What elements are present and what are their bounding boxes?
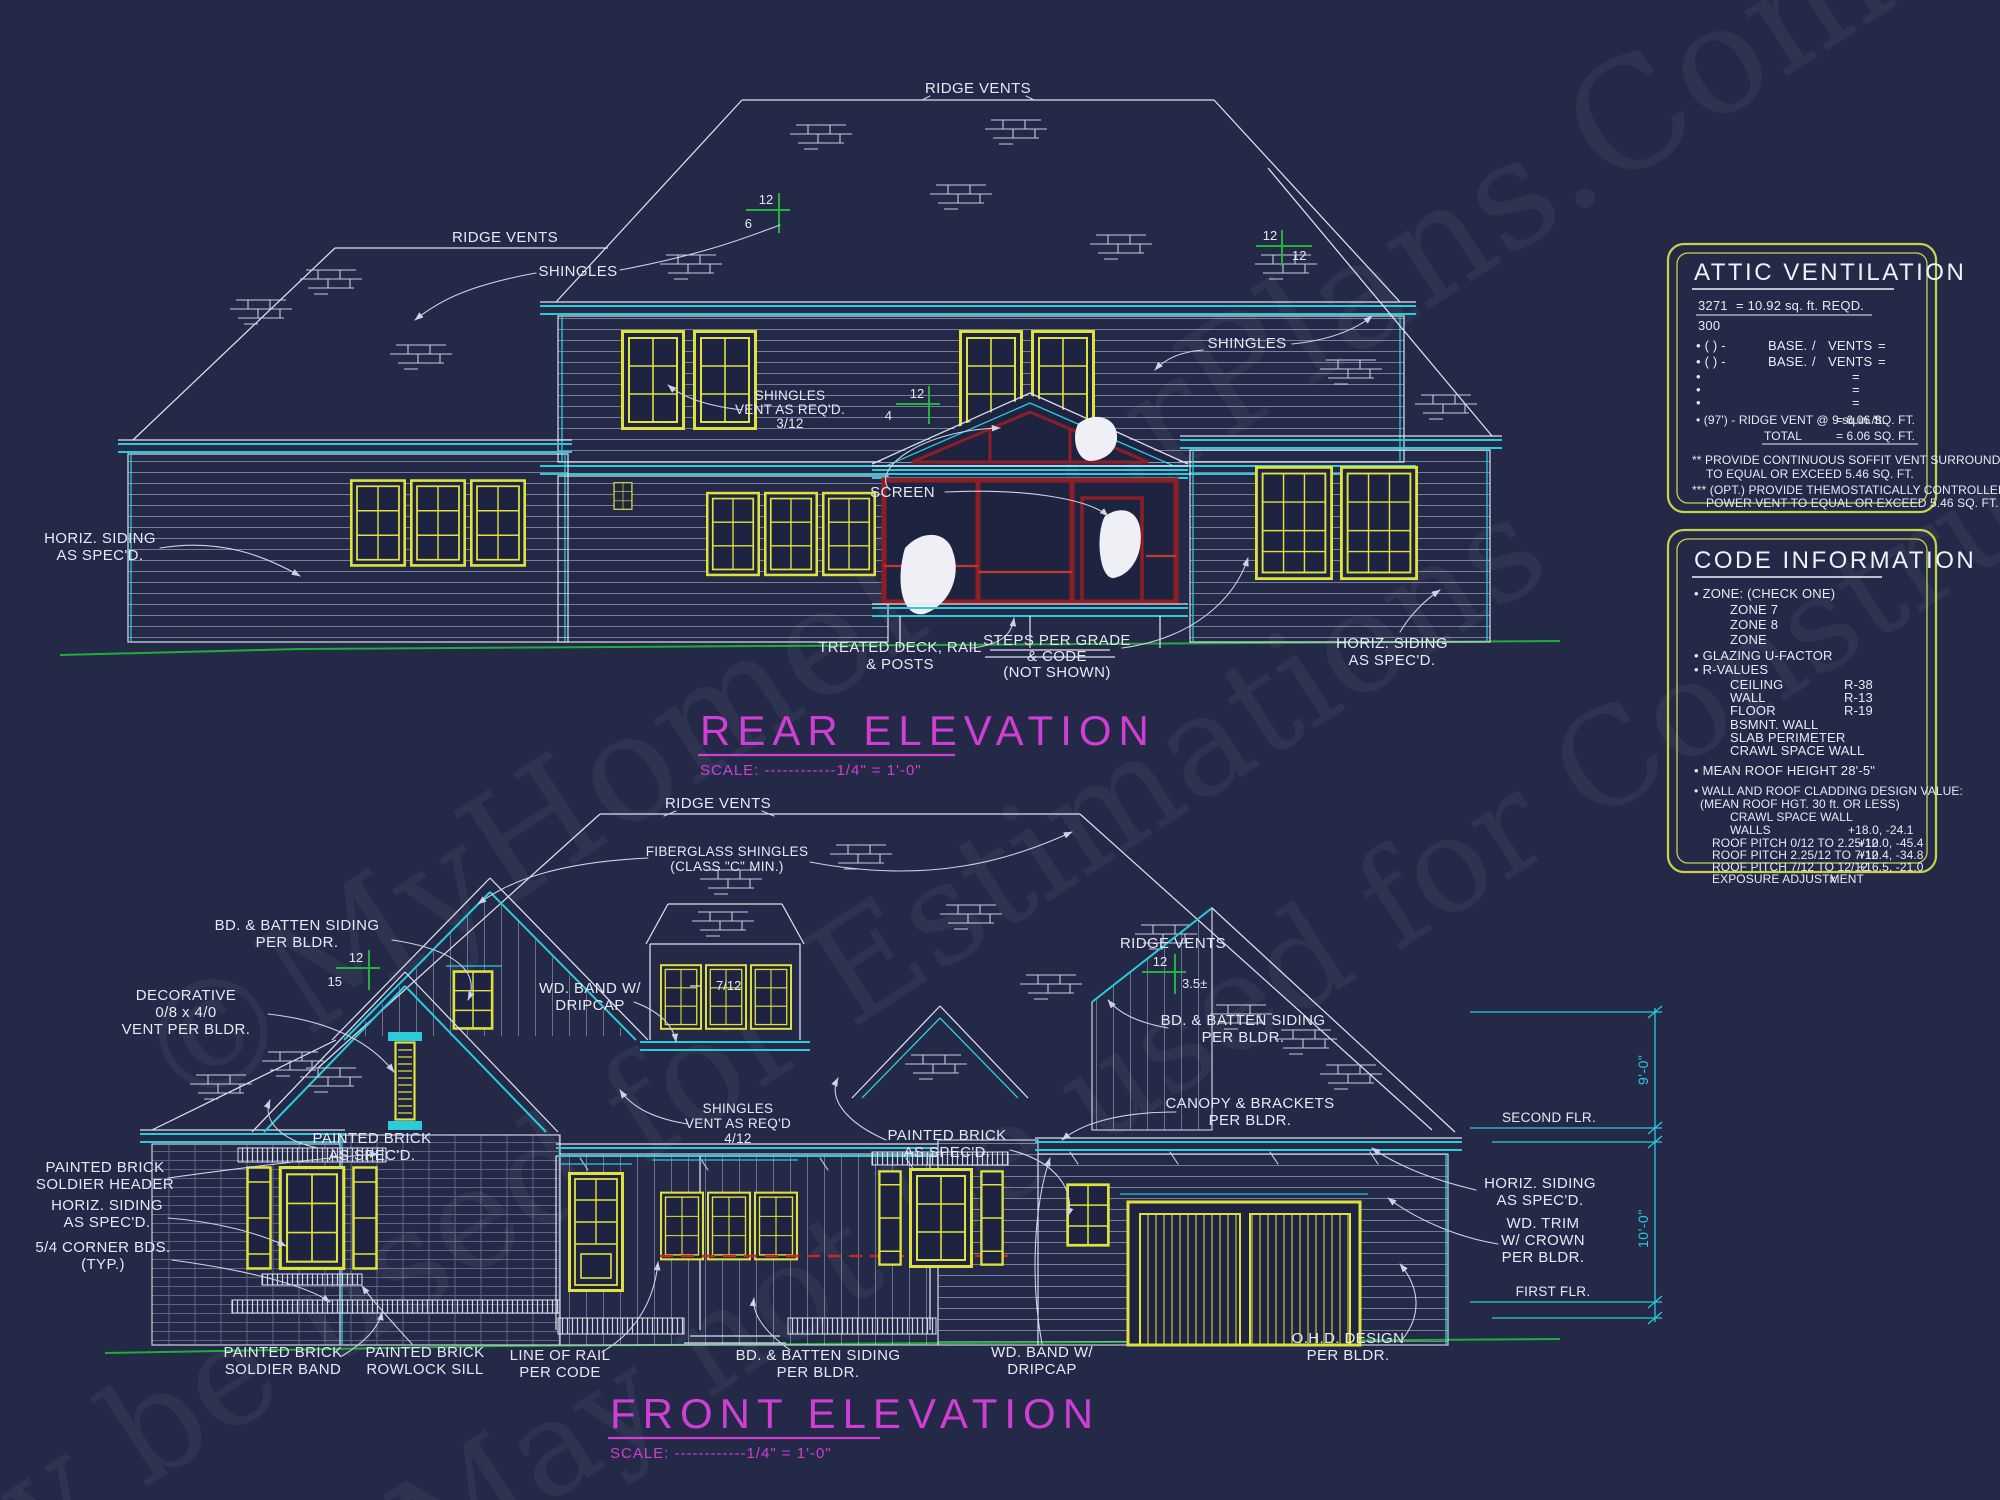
front-label-wd-band-left-2: DRIPCAP: [555, 997, 624, 1014]
front-label-bd-batten-right-2: PER BLDR.: [1202, 1029, 1285, 1046]
front-label-soldier-header-1: PAINTED BRICK: [45, 1159, 164, 1176]
front-label-ridge-vents-top: RIDGE VENTS: [665, 795, 771, 812]
front-center-window-c: [755, 1193, 797, 1260]
blueprint-canvas: ©MyHomeFloorPlans.Com May not be used fo…: [0, 0, 2000, 1500]
front-pitch-left-run: 15: [328, 974, 342, 989]
attic-dot3-e: =: [1852, 395, 1860, 410]
attic-ridge-value: = 6.06 SQ. FT.: [1836, 413, 1915, 427]
code-row-15: CRAWL SPACE WALL: [1730, 810, 1853, 824]
rear-label-treated-deck-2: & POSTS: [866, 656, 934, 673]
attic-req-numerator: 3271: [1698, 298, 1728, 313]
rear-label-shingles-vent-3: 3/12: [776, 416, 803, 431]
attic-base2-eq: =: [1878, 354, 1886, 369]
front-label-soldier-band-2: SOLDIER BAND: [225, 1361, 342, 1378]
front-dim-upper: 9'-0": [1635, 1055, 1651, 1085]
rear-pitch-porch-run: 4: [885, 408, 892, 423]
code-row-14: (MEAN ROOF HGT. 30 ft. OR LESS): [1700, 797, 1900, 811]
front-left-shutter-a: [248, 1168, 271, 1269]
rear-right-window-b: [1341, 467, 1416, 578]
rear-left-window-a: [351, 481, 404, 566]
code-row-13: • WALL AND ROOF CLADDING DESIGN VALUE:: [1694, 784, 1963, 798]
attic-req-denominator: 300: [1698, 318, 1720, 333]
front-label-rowlock-1: PAINTED BRICK: [365, 1344, 484, 1361]
code-row-20-value: x: [1830, 872, 1836, 886]
front-entry-door: [570, 1174, 623, 1291]
front-label-horiz-siding-right-2: AS SPEC'D.: [1497, 1192, 1584, 1209]
rear-label-steps-2: & CODE: [1027, 648, 1087, 665]
front-left-window: [280, 1168, 343, 1269]
front-label-fiberglass-2: (CLASS "C" MIN.): [670, 859, 783, 874]
front-gable-small-window: [454, 972, 492, 1029]
front-label-soldier-header-2: SOLDIER HEADER: [36, 1176, 174, 1193]
rear-label-horiz-siding-right-2: AS SPEC'D.: [1349, 652, 1436, 669]
rear-label-steps-3: (NOT SHOWN): [1003, 664, 1110, 681]
rear-center-window-a: [707, 493, 758, 575]
front-label-fiberglass-1: FIBERGLASS SHINGLES: [646, 844, 809, 859]
rear-pitch-right-run: 12: [1292, 248, 1306, 263]
front-label-painted-brick-left-2: AS SPEC'D.: [329, 1147, 416, 1164]
rear-upper-window-left-a: [623, 332, 684, 429]
rear-label-screen: SCREEN: [870, 484, 935, 501]
rear-pitch-left-rise: 12: [759, 192, 773, 207]
front-dimensions: SECOND FLR. FIRST FLR. 9'-0" 10'-0": [1470, 1006, 1662, 1324]
attic-dot3-b: •: [1696, 395, 1701, 410]
front-label-bd-batten-bottom-2: PER BLDR.: [777, 1364, 860, 1381]
front-label-canopy-2: PER BLDR.: [1209, 1112, 1292, 1129]
front-label-canopy-1: CANOPY & BRACKETS: [1165, 1095, 1334, 1112]
rear-pitch-right-rise: 12: [1263, 228, 1277, 243]
front-label-painted-brick-left-1: PAINTED BRICK: [312, 1130, 431, 1147]
front-pitch-right-rise: 12: [1153, 954, 1167, 969]
rear-pitch-porch-rise: 12: [910, 386, 924, 401]
front-label-wd-trim-crown-1: WD. TRIM: [1507, 1215, 1580, 1232]
rear-label-horiz-siding-left-2: AS SPEC'D.: [57, 547, 144, 564]
front-dormer-window-c: [751, 965, 791, 1029]
front-second-floor-label: SECOND FLR.: [1502, 1110, 1596, 1125]
front-label-ohd-2: PER BLDR.: [1307, 1347, 1390, 1364]
front-label-ohd-1: O.H.D. DESIGN: [1292, 1330, 1405, 1347]
rear-label-treated-deck-1: TREATED DECK, RAIL: [818, 639, 982, 656]
code-row-1: ZONE 7: [1730, 602, 1778, 617]
front-label-decorative-3: VENT PER BLDR.: [122, 1021, 251, 1038]
attic-base2-base: BASE.: [1768, 354, 1807, 369]
rear-label-horiz-siding-left-1: HORIZ. SIDING: [44, 530, 156, 547]
attic-base1-slash: /: [1812, 338, 1816, 353]
code-row-5: • R-VALUES: [1694, 662, 1768, 677]
attic-base-row-2: • ( ) - BASE. / VENTS =: [1696, 354, 1886, 369]
front-label-wd-band-bottom-1: WD. BAND W/: [991, 1344, 1093, 1361]
attic-note1-line2: TO EQUAL OR EXCEED 5.46 SQ. FT.: [1706, 467, 1914, 481]
front-title: FRONT ELEVATION: [610, 1390, 1100, 1437]
attic-base2-slash: /: [1812, 354, 1816, 369]
front-right-shutter-b: [981, 1171, 1002, 1264]
front-label-wd-trim-crown-3: PER BLDR.: [1502, 1249, 1585, 1266]
rear-pitch-left: 12 6: [745, 192, 790, 233]
rear-pitch-left-run: 6: [745, 216, 752, 231]
front-right-window: [911, 1170, 972, 1267]
rear-small-window: [614, 483, 632, 510]
code-row-0: • ZONE: (CHECK ONE): [1694, 586, 1835, 601]
code-row-3: ZONE: [1730, 632, 1767, 647]
attic-base1-prefix: • ( ) -: [1696, 338, 1726, 353]
code-panel-title: CODE INFORMATION: [1694, 547, 1976, 574]
front-label-horiz-siding-left-1: HORIZ. SIDING: [51, 1197, 163, 1214]
front-left-shutter-b: [354, 1168, 377, 1269]
front-pitch-right-run: 3.5±: [1182, 976, 1207, 991]
attic-base1-vents: VENTS: [1828, 338, 1872, 353]
code-row-12: • MEAN ROOF HEIGHT 28'-5": [1694, 763, 1875, 778]
front-pitch-left-rise: 12: [349, 950, 363, 965]
attic-total-label: TOTAL: [1764, 429, 1802, 443]
attic-note1-line1: ** PROVIDE CONTINUOUS SOFFIT VENT SURROU…: [1692, 453, 2000, 467]
rear-first-floor: [558, 476, 888, 642]
rear-label-shingles-vent-2: VENT AS REQ'D.: [735, 402, 845, 417]
front-label-wd-trim-crown-2: W/ CROWN: [1501, 1232, 1585, 1249]
rear-label-steps-1: STEPS PER GRADE: [983, 632, 1131, 649]
front-label-painted-brick-right-2: AS SPEC'D.: [904, 1144, 991, 1161]
code-row-16-value: +18.0, -24.1: [1848, 823, 1914, 837]
attic-note2-line2: POWER VENT TO EQUAL OR EXCEED 5.46 SQ. F…: [1706, 496, 1999, 510]
front-dormer-pitch: 7/12: [716, 978, 741, 993]
front-label-bd-batten-right-1: BD. & BATTEN SIDING: [1161, 1012, 1326, 1029]
front-label-corner-bds-1: 5/4 CORNER BDS.: [35, 1239, 170, 1256]
front-label-bd-batten-left-2: PER BLDR.: [256, 934, 339, 951]
front-dormer-window-b: [706, 965, 746, 1029]
front-label-wd-band-left-1: WD. BAND W/: [539, 980, 641, 997]
front-garage-window: [1068, 1185, 1109, 1246]
attic-base1-eq: =: [1878, 338, 1886, 353]
front-dormer-window-a: [661, 965, 701, 1029]
attic-base2-vents: VENTS: [1828, 354, 1872, 369]
attic-base2-prefix: • ( ) -: [1696, 354, 1726, 369]
attic-base1-base: BASE.: [1768, 338, 1807, 353]
front-right-shutter-a: [879, 1171, 900, 1264]
front-label-rowlock-2: ROWLOCK SILL: [366, 1361, 483, 1378]
attic-total-value: = 6.06 SQ. FT.: [1836, 429, 1915, 443]
rear-label-shingles-right: SHINGLES: [1207, 335, 1286, 352]
code-row-8-value: R-19: [1844, 703, 1873, 718]
rear-center-window-c: [823, 493, 874, 575]
front-label-bd-batten-bottom-1: BD. & BATTEN SIDING: [736, 1347, 901, 1364]
front-label-line-of-rail-1: LINE OF RAIL: [510, 1347, 611, 1364]
rear-left-wing: [118, 248, 608, 642]
rear-center-window-b: [765, 493, 816, 575]
rear-label-horiz-siding-right-1: HORIZ. SIDING: [1336, 635, 1448, 652]
front-dim-lower: 10'-0": [1635, 1209, 1651, 1248]
rear-label-shingles-left: SHINGLES: [538, 263, 617, 280]
front-center-window-a: [661, 1193, 703, 1260]
front-label-shingles-vent-1: SHINGLES: [703, 1101, 774, 1116]
front-decorative-vent: [396, 1043, 415, 1120]
code-row-19-value: +16.5, -21.0: [1858, 860, 1924, 874]
rear-label-shingles-vent-1: SHINGLES: [755, 388, 826, 403]
code-row-20: EXPOSURE ADJUSTMENT: [1712, 872, 1864, 886]
front-label-decorative-1: DECORATIVE: [136, 987, 236, 1004]
front-scale: SCALE: ------------1/4" = 1'-0": [610, 1445, 832, 1462]
rear-label-ridge-vents-left: RIDGE VENTS: [452, 229, 558, 246]
code-row-8: FLOOR: [1730, 703, 1776, 718]
front-label-shingles-vent-3: 4/12: [724, 1131, 751, 1146]
front-label-decorative-2: 0/8 x 4/0: [155, 1004, 216, 1021]
rear-left-window-b: [411, 481, 464, 566]
attic-req-rest: = 10.92 sq. ft. REQD.: [1736, 298, 1864, 313]
rear-left-window-c: [471, 481, 524, 566]
attic-note2-line1: *** (OPT.) PROVIDE THEMOSTATICALLY CONTR…: [1692, 483, 2000, 497]
code-row-11: CRAWL SPACE WALL: [1730, 743, 1864, 758]
attic-dot-rows: • = • = • =: [1696, 369, 1860, 410]
front-label-shingles-vent-2: VENT AS REQ'D: [685, 1116, 791, 1131]
front-label-bd-batten-left-1: BD. & BATTEN SIDING: [215, 917, 380, 934]
attic-panel-title: ATTIC VENTILATION: [1694, 259, 1966, 286]
front-label-wd-band-bottom-2: DRIPCAP: [1007, 1361, 1076, 1378]
front-center-window-b: [708, 1193, 750, 1260]
front-label-corner-bds-2: (TYP.): [81, 1256, 125, 1273]
rear-title: REAR ELEVATION: [700, 707, 1156, 754]
front-label-line-of-rail-2: PER CODE: [519, 1364, 601, 1381]
front-title-block: FRONT ELEVATION SCALE: ------------1/4" …: [608, 1390, 1100, 1462]
code-row-4: • GLAZING U-FACTOR: [1694, 648, 1833, 663]
front-label-ridge-vents-right: RIDGE VENTS: [1120, 935, 1226, 952]
attic-base-row-1: • ( ) - BASE. / VENTS =: [1696, 338, 1886, 353]
front-first-floor-label: FIRST FLR.: [1516, 1284, 1591, 1299]
front-label-painted-brick-right-1: PAINTED BRICK: [887, 1127, 1006, 1144]
code-row-2: ZONE 8: [1730, 617, 1778, 632]
front-label-soldier-band-1: PAINTED BRICK: [223, 1344, 342, 1361]
front-label-horiz-siding-right-1: HORIZ. SIDING: [1484, 1175, 1596, 1192]
code-row-16: WALLS: [1730, 823, 1771, 837]
blueprint-page: ©MyHomeFloorPlans.Com May not be used fo…: [0, 0, 2000, 1500]
rear-label-ridge-vents-top: RIDGE VENTS: [925, 80, 1031, 97]
rear-right-window-a: [1256, 467, 1331, 578]
front-label-horiz-siding-left-2: AS SPEC'D.: [64, 1214, 151, 1231]
rear-scale: SCALE: ------------1/4" = 1'-0": [700, 762, 922, 779]
